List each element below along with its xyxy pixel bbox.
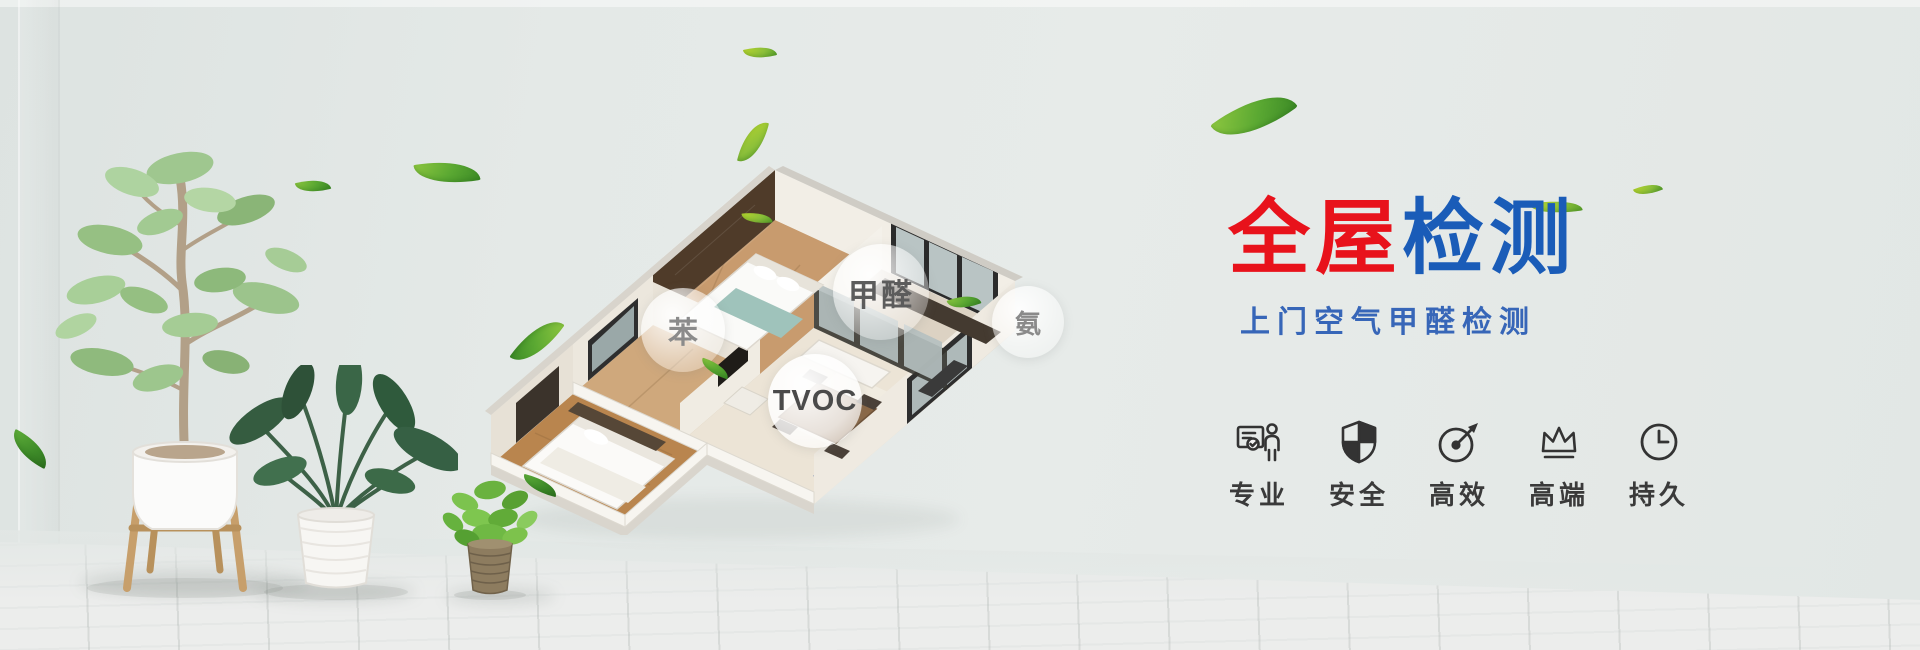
feature-professional: 专业 [1226,418,1292,512]
feature-label: 高端 [1529,475,1589,512]
gauge-icon [1435,418,1483,466]
pollutant-label-ammonia: 氨 [1015,304,1041,341]
banner-title: 全屋检测 [1228,198,1576,280]
feature-highend: 高端 [1526,418,1592,512]
feature-label: 高效 [1429,475,1489,512]
feature-safe: 安全 [1326,418,1392,512]
pollutant-label-formaldehyde: 甲醛 [848,270,914,315]
feature-row: 专业 安全 高效 高端 [1226,418,1692,512]
wall-highlight [0,0,1920,7]
hero-banner: 苯 甲醛 氨 TVOC 全屋检测 上门空气甲醛检测 [0,0,1920,650]
id-badge-person-icon [1235,418,1283,466]
floating-leaf-icon [1633,179,1663,200]
crown-icon [1535,418,1583,466]
floating-leaf-icon [1210,77,1297,154]
pollutant-bubble-tvoc: TVOC [768,354,862,448]
leafy-plant-graphic [228,365,458,600]
feature-lasting: 持久 [1626,418,1692,512]
pollutant-bubble-ammonia: 氨 [992,286,1064,358]
pollutant-label-benzene: 苯 [668,308,698,352]
feature-efficient: 高效 [1426,418,1492,512]
banner-title-red: 全屋 [1228,193,1402,284]
shield-icon [1335,418,1383,466]
floating-leaf-icon [737,118,769,166]
clock-icon [1635,418,1683,466]
pollutant-bubble-formaldehyde: 甲醛 [833,244,929,340]
banner-subtitle: 上门空气甲醛检测 [1240,297,1536,341]
floating-leaf-icon [743,42,777,62]
pollutant-label-tvoc: TVOC [773,385,858,418]
feature-label: 持久 [1629,475,1689,512]
potted-plant-leafy [228,365,458,600]
feature-label: 专业 [1229,475,1289,512]
feature-label: 安全 [1329,475,1389,512]
banner-title-blue: 检测 [1402,193,1576,284]
pollutant-bubble-benzene: 苯 [641,288,725,372]
